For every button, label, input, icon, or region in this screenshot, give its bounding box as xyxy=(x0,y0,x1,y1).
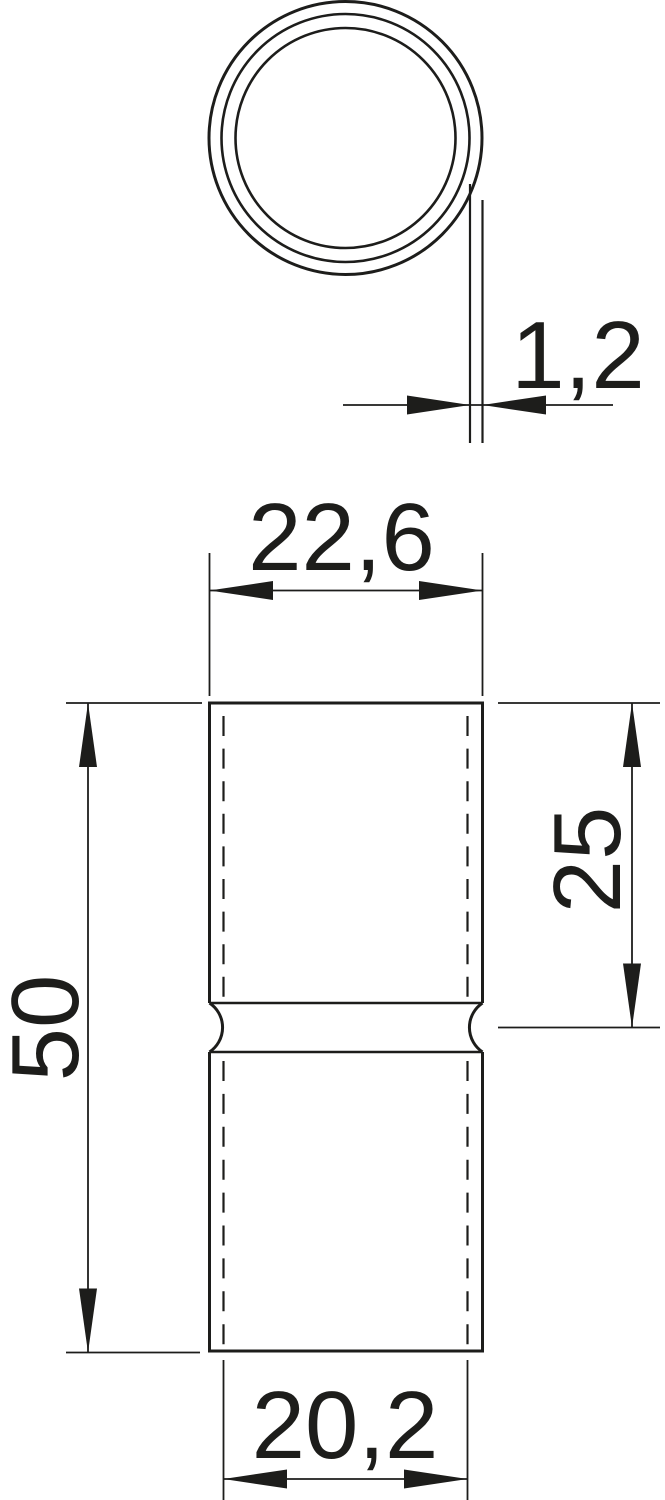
dim-outer-width: 22,6 xyxy=(210,484,483,696)
dim-overall-length-arrow-bottom xyxy=(79,1289,97,1353)
dim-upper-section-label: 25 xyxy=(534,807,641,914)
groove-arc-right xyxy=(469,1003,482,1052)
dim-wall-thickness-label: 1,2 xyxy=(511,302,644,409)
dim-overall-length: 50 xyxy=(0,703,202,1353)
dim-upper-section: 25 xyxy=(498,703,660,1028)
groove-arc-left xyxy=(210,1003,223,1052)
dim-wall-thickness: 1,2 xyxy=(343,302,645,415)
sleeve-upper-body-outline xyxy=(210,703,483,1003)
dim-overall-length-label: 50 xyxy=(0,975,99,1082)
front-view-sleeve xyxy=(210,703,483,1351)
drawing-canvas: 1,2 22,6 50 xyxy=(0,0,665,1500)
sleeve-lower-body-outline xyxy=(210,1052,483,1351)
dim-outer-width-label: 22,6 xyxy=(248,484,435,591)
dim-upper-section-arrow-top xyxy=(623,703,641,767)
tube-stop-circle xyxy=(236,28,456,248)
dim-upper-section-arrow-bottom xyxy=(623,964,641,1028)
top-view-cross-section xyxy=(209,2,483,444)
bore-diameter-circle xyxy=(222,14,470,262)
technical-drawing: 1,2 22,6 50 xyxy=(0,0,665,1500)
dim-inner-width-label: 20,2 xyxy=(252,1372,439,1479)
dim-inner-width: 20,2 xyxy=(224,1360,468,1500)
dim-overall-length-arrow-top xyxy=(79,703,97,767)
dim-wall-thickness-arrow-left xyxy=(407,396,470,415)
outer-diameter-circle xyxy=(209,2,482,275)
